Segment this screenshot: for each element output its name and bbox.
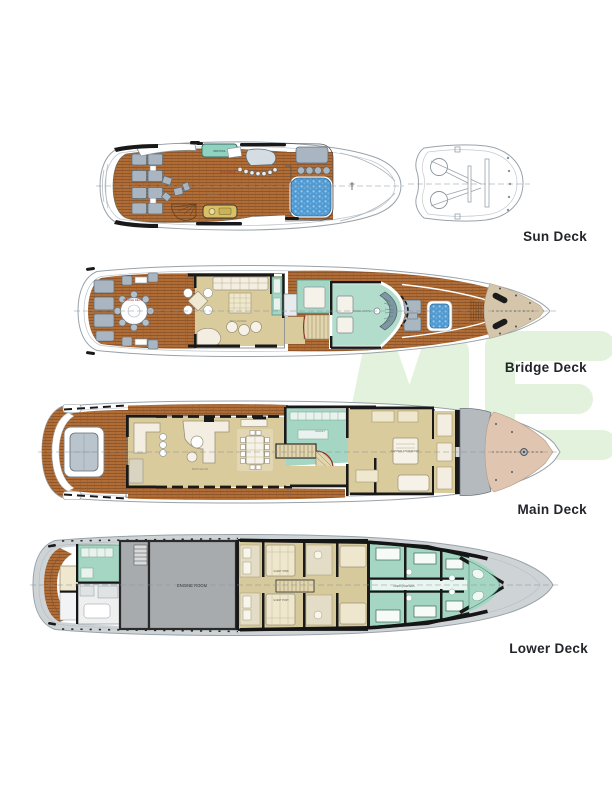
svg-text:CREW QUARTERS: CREW QUARTERS xyxy=(393,585,415,588)
svg-text:MASTER STATEROOM: MASTER STATEROOM xyxy=(391,449,419,453)
svg-text:SUN DECK: SUN DECK xyxy=(220,170,236,174)
svg-text:LOUNGE: LOUNGE xyxy=(207,193,218,197)
svg-text:SKY LOUNGE: SKY LOUNGE xyxy=(230,319,247,323)
svg-text:GUEST PORT: GUEST PORT xyxy=(273,599,289,602)
svg-text:GALLEY: GALLEY xyxy=(315,429,325,433)
svg-text:BRIDGE DECK: BRIDGE DECK xyxy=(123,298,142,302)
svg-text:SPA POOL: SPA POOL xyxy=(213,149,226,153)
svg-text:ENGINE ROOM: ENGINE ROOM xyxy=(177,583,208,588)
svg-text:GUEST STBD: GUEST STBD xyxy=(273,570,289,573)
svg-text:MAIN SALON: MAIN SALON xyxy=(192,467,208,471)
